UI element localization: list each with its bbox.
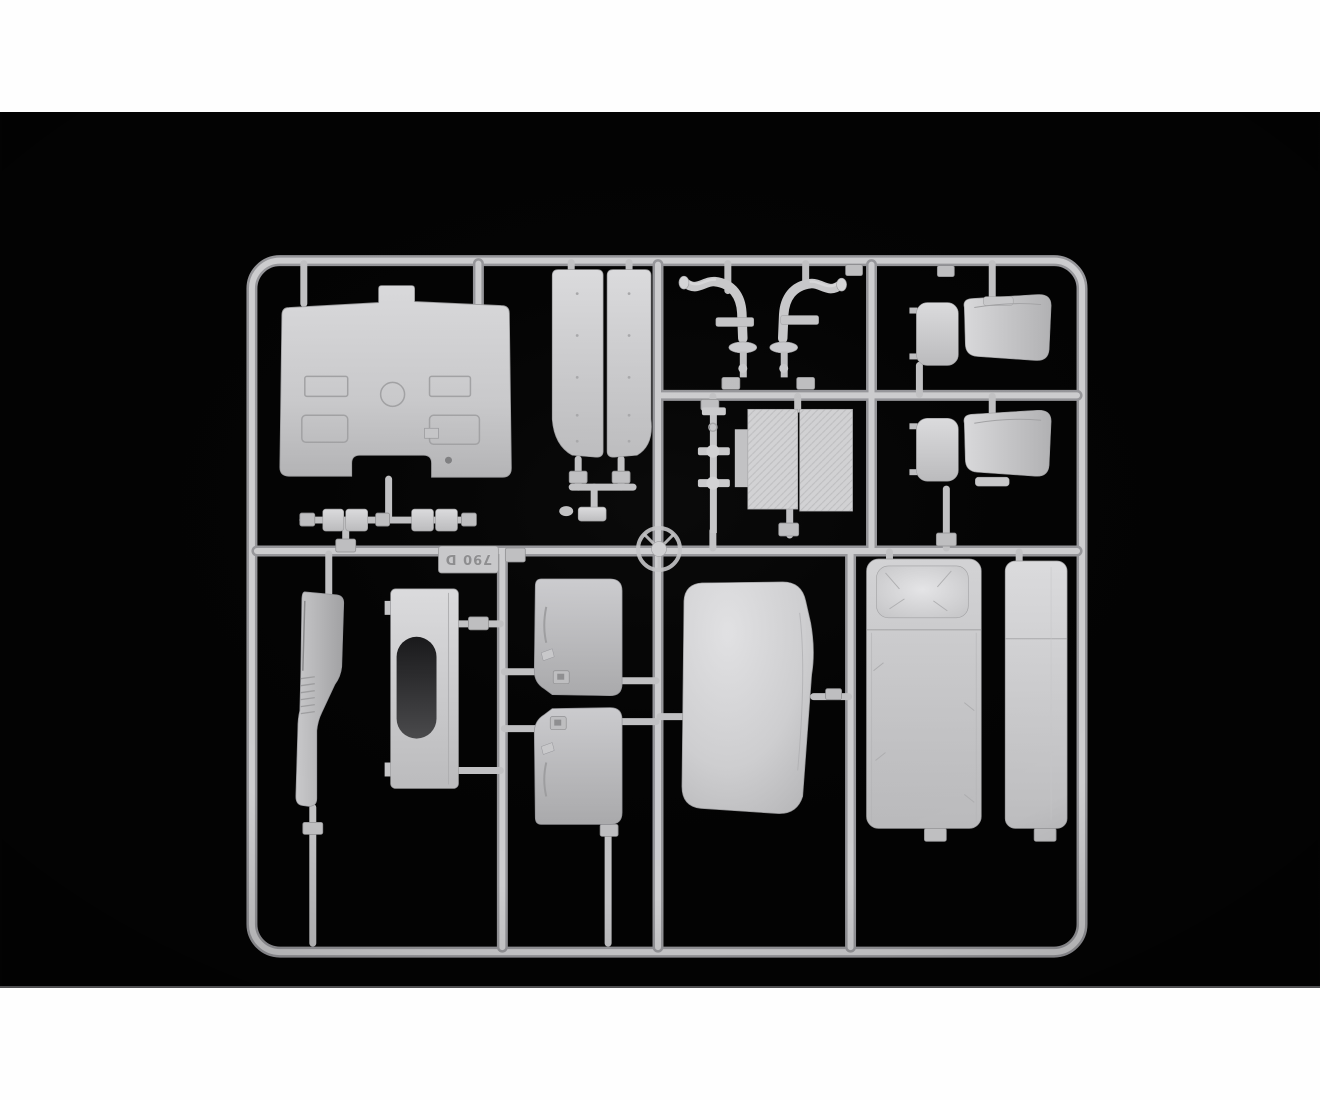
page-background: 790 D 790 D bbox=[0, 0, 1320, 1100]
product-photo: 790 D 790 D bbox=[0, 112, 1320, 988]
sprue-photo-canvas: 790 D 790 D bbox=[0, 112, 1320, 986]
photo-vignette bbox=[2, 112, 1319, 986]
